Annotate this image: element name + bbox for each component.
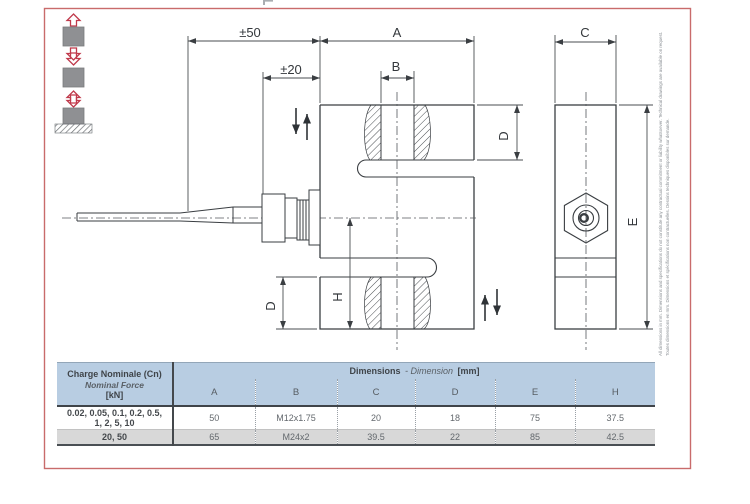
load-block (63, 27, 84, 46)
tapped-hole-bottom (365, 277, 431, 329)
dim-label-A: A (393, 25, 402, 40)
upper-slot (358, 160, 475, 177)
dimensions-header-cell: Dimensions - Dimension [mm] (173, 363, 655, 380)
dim-value-cell: 50 (173, 406, 255, 430)
dim-value-cell: 22 (415, 430, 495, 446)
cable-gland (262, 190, 320, 245)
side-view (555, 92, 616, 350)
dim-label-H: H (330, 292, 345, 301)
dim-label-pm50: ±50 (239, 25, 261, 40)
kn-unit-label: [kN] (57, 390, 172, 401)
disclaimer-en: All dimensions in mm. Dimensions and spe… (658, 32, 663, 356)
nominal-force-header-cell: Charge Nominale (Cn) Nominal Force [kN] (57, 363, 173, 407)
page-edge-artifact (263, 0, 273, 5)
capacity-range-cell: 20, 50 (57, 430, 173, 446)
mm-unit-label: [mm] (458, 366, 480, 376)
ground-compression-icon (55, 95, 92, 133)
dimension-labels: ±50 ±20 A B C D D H E (239, 25, 640, 311)
dimensions-label: Dimensions (349, 366, 400, 376)
col-header-C: C (337, 379, 415, 406)
dim-value-cell: 18 (415, 406, 495, 430)
dim-value-cell: 37.5 (575, 406, 655, 430)
dim-label-D-top: D (496, 131, 511, 140)
dim-value-cell: 39.5 (337, 430, 415, 446)
disclaimer-fr: Toutes dimensions en mm. Dimensions et s… (665, 119, 670, 356)
force-arrows-top (296, 108, 307, 140)
dim-value-cell: 42.5 (575, 430, 655, 446)
col-header-D: D (415, 379, 495, 406)
charge-nominale-label: Charge Nominale (Cn) (57, 368, 172, 380)
table-header-row-1: Charge Nominale (Cn) Nominal Force [kN] … (57, 363, 655, 380)
capacity-range-cell: 0.02, 0.05, 0.1, 0.2, 0.5, 1, 2, 5, 10 (57, 406, 173, 430)
capacity-range-line1: 0.02, 0.05, 0.1, 0.2, 0.5, (57, 408, 172, 418)
arrow-down-icon (67, 95, 80, 107)
capacity-range-line2: 1, 2, 5, 10 (57, 418, 172, 428)
nominal-force-label: Nominal Force (57, 380, 172, 390)
dim-label-C: C (580, 25, 589, 40)
col-header-A: A (173, 379, 255, 406)
dim-value-cell: 85 (495, 430, 575, 446)
datasheet-page: { "page": { "frame_color": "#c96b6b", "l… (0, 0, 750, 504)
hatch-section (365, 277, 382, 329)
table-row: 20, 50 65 M24x2 39.5 22 85 42.5 (57, 430, 655, 446)
dim-value-cell: M24x2 (255, 430, 337, 446)
hatch-section (365, 105, 382, 160)
dimension-italic-label: - Dimension (405, 366, 453, 376)
dim-label-pm20: ±20 (280, 62, 302, 77)
lower-slot (320, 258, 437, 277)
load-block (63, 108, 84, 124)
arrow-up-icon (67, 91, 80, 103)
force-arrows-bottom (485, 289, 497, 321)
disclaimer-text: Toutes dimensions en mm. Dimensions et s… (658, 32, 670, 356)
dim-value-cell: M12x1.75 (255, 406, 337, 430)
dim-value-cell: 65 (173, 430, 255, 446)
arrow-up-icon (67, 14, 80, 26)
col-header-E: E (495, 379, 575, 406)
ground-hatch (55, 124, 92, 133)
dim-label-D-bottom: D (263, 301, 278, 310)
table-row: 0.02, 0.05, 0.1, 0.2, 0.5, 1, 2, 5, 10 5… (57, 406, 655, 430)
load-mode-icons (55, 14, 92, 133)
load-block (63, 68, 84, 87)
hatch-section (414, 277, 431, 329)
col-header-H: H (575, 379, 655, 406)
col-header-B: B (255, 379, 337, 406)
dim-value-cell: 20 (337, 406, 415, 430)
dim-label-E: E (625, 217, 640, 226)
tapped-hole-top (365, 105, 431, 160)
front-view (62, 92, 497, 350)
dimensions-table: Charge Nominale (Cn) Nominal Force [kN] … (57, 362, 655, 446)
cable (77, 207, 262, 223)
dim-label-B: B (392, 59, 401, 74)
dim-value-cell: 75 (495, 406, 575, 430)
hatch-section (414, 105, 431, 160)
dimensions-table-grid: Charge Nominale (Cn) Nominal Force [kN] … (57, 362, 655, 446)
